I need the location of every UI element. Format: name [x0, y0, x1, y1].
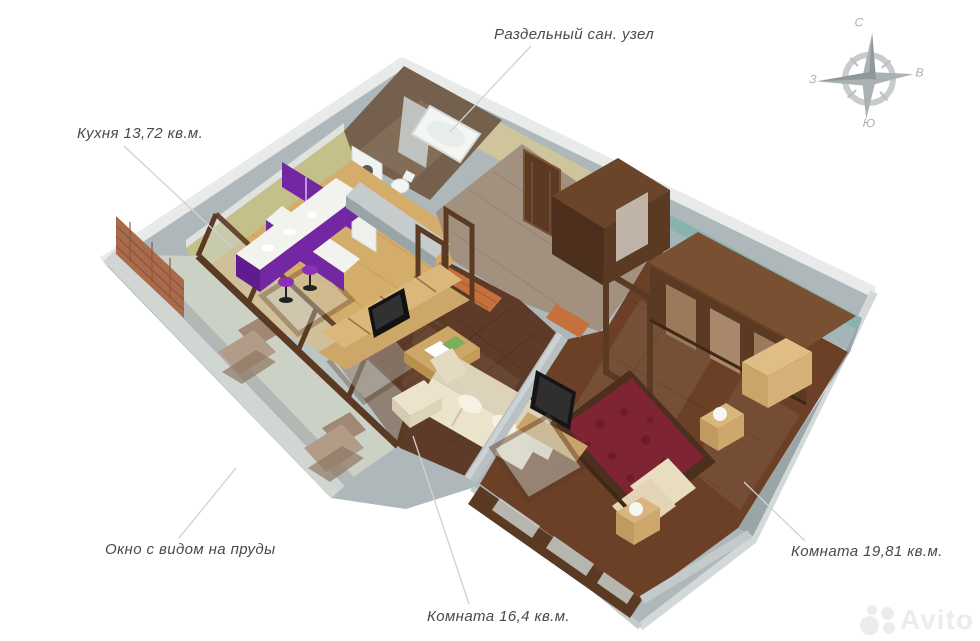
- compass-north: С: [854, 15, 864, 30]
- label-kitchen: Кухня 13,72 кв.м.: [77, 125, 203, 142]
- compass-rose: С В З Ю: [806, 12, 927, 134]
- lamp: [713, 407, 727, 421]
- label-window-view: Окно с видом на пруды: [105, 541, 276, 558]
- label-san-uzel: Раздельный сан. узел: [494, 26, 654, 43]
- avito-watermark: Avito: [860, 603, 974, 637]
- avito-watermark-text: Avito: [900, 604, 974, 636]
- lamp: [629, 502, 643, 516]
- compass-south: Ю: [862, 116, 875, 131]
- label-room-19: Комната 19,81 кв.м.: [791, 543, 943, 560]
- compass-east: В: [915, 65, 924, 80]
- avito-logo-icon: [860, 603, 898, 637]
- floorplan-image: С В З Ю Раздельный сан. узел Кухня 13,72…: [0, 0, 980, 641]
- compass-west: З: [809, 72, 818, 87]
- label-room-16: Комната 16,4 кв.м.: [427, 608, 570, 625]
